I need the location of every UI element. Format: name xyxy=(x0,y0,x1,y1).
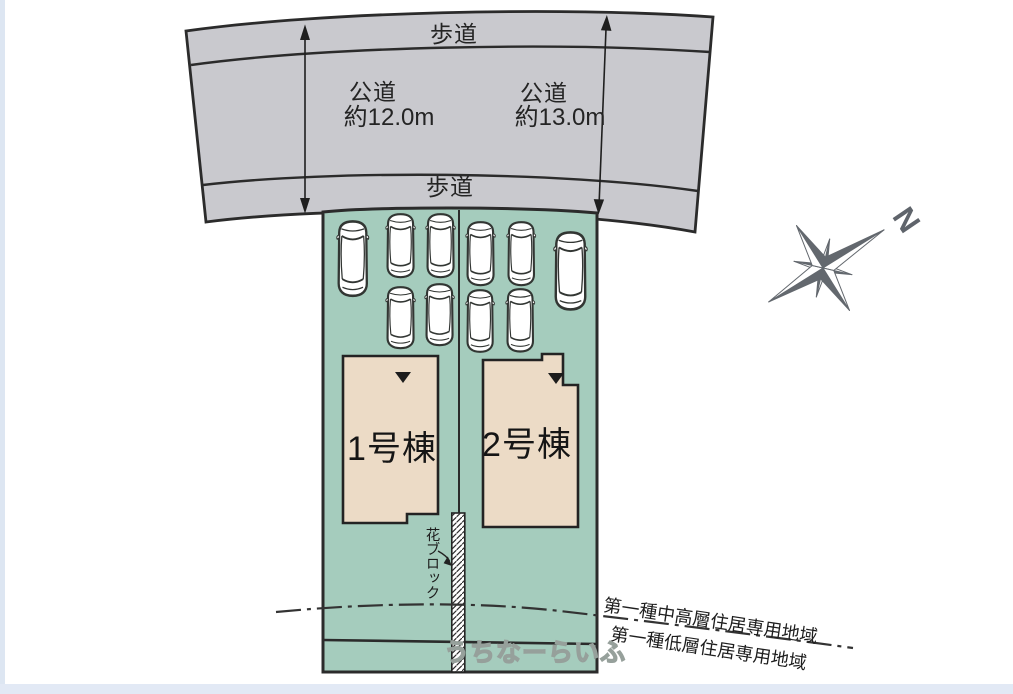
road-left-width: 約12.0m xyxy=(329,105,449,131)
road-left-name: 公道 xyxy=(343,80,403,105)
flower-block-label: 花ブロック xyxy=(424,527,439,599)
car-10 xyxy=(506,289,535,351)
car-8 xyxy=(425,284,455,345)
car-1 xyxy=(337,221,369,295)
building-2-label: 2号棟 xyxy=(467,427,587,464)
road-right-width: 約13.0m xyxy=(500,105,620,131)
car-7 xyxy=(386,287,416,348)
car-2 xyxy=(386,214,416,277)
sidewalk-top-label: 歩道 xyxy=(424,22,484,47)
sidewalk-bottom-label: 歩道 xyxy=(420,175,480,200)
site-plan-figure: 歩道 公道 約12.0m 公道 約13.0m 歩道 1号棟 2号棟 花ブロック … xyxy=(0,0,1013,694)
car-3 xyxy=(426,214,456,277)
car-5 xyxy=(507,222,536,285)
car-4 xyxy=(466,222,496,285)
watermark-text: うちなーらいふ xyxy=(444,640,572,668)
road-right-name: 公道 xyxy=(514,81,574,106)
car-6 xyxy=(554,232,587,309)
car-9 xyxy=(466,290,495,352)
building-1-label: 1号棟 xyxy=(332,431,452,468)
